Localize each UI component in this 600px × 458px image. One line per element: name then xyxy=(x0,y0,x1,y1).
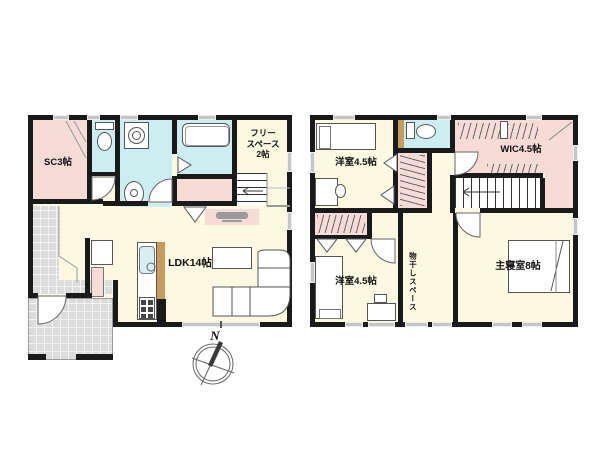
window-opening xyxy=(198,115,216,120)
wall-segment xyxy=(450,175,455,213)
wall-segment xyxy=(172,120,177,154)
room-label-drying: 物干しスペース xyxy=(408,242,417,322)
room-label-bedroom-a: 洋室4.5帖 xyxy=(326,157,386,169)
tv-icon xyxy=(216,212,248,219)
wall-segment xyxy=(66,293,92,298)
window-opening xyxy=(492,322,512,327)
wall-segment xyxy=(115,120,120,204)
porch-wall-stub xyxy=(76,354,113,360)
stairs-1f-icon xyxy=(237,173,267,206)
floor-plan-canvas: SC3帖 フリー スペース 2帖 LDK14帖 洋室4.5帖 WIC4.5帖 洋… xyxy=(0,0,600,458)
wall-segment xyxy=(33,199,103,204)
hanger-rack-icon xyxy=(400,155,425,206)
bathtub-icon xyxy=(182,123,230,147)
room-wic-ext xyxy=(545,173,573,208)
window-opening xyxy=(310,262,315,283)
washing-machine-icon xyxy=(124,122,149,149)
bathtub-inner xyxy=(185,126,229,146)
tv-board xyxy=(205,209,259,225)
entrance-tile-strip xyxy=(33,206,59,282)
wall-segment xyxy=(177,174,237,179)
toilet-tank-icon xyxy=(95,122,114,130)
wall-segment xyxy=(92,172,115,176)
window-opening xyxy=(522,322,542,327)
wall-segment xyxy=(540,178,545,208)
window-opening xyxy=(368,322,395,327)
pillow xyxy=(319,309,341,319)
wall-segment xyxy=(28,293,38,298)
hall-cabinet xyxy=(91,267,104,297)
label-line: スペース xyxy=(237,139,289,150)
toilet-tank-icon xyxy=(406,122,415,139)
window-opening xyxy=(437,115,451,120)
wall-segment xyxy=(157,299,166,322)
wic-support xyxy=(500,121,508,139)
porch-tiles xyxy=(28,298,113,360)
chair-icon xyxy=(335,184,346,198)
shoe-cabinet xyxy=(91,240,113,265)
toilet-counter xyxy=(398,120,404,148)
wall-segment xyxy=(87,120,92,201)
wall-segment xyxy=(450,120,455,152)
compass-north-label: N xyxy=(207,328,223,344)
room-label-bedroom-b: 洋室4.5帖 xyxy=(326,276,386,288)
room-changing xyxy=(177,179,232,201)
room-label-sc: SC3帖 xyxy=(30,157,86,169)
window-opening xyxy=(87,115,100,120)
wall-segment xyxy=(28,115,33,298)
room-label-free-space: フリー スペース 2帖 xyxy=(237,128,289,160)
wall-segment xyxy=(393,120,398,213)
wall-segment xyxy=(427,153,432,213)
window-opening xyxy=(573,218,578,235)
window-opening xyxy=(287,212,292,230)
hanger-rack-icon xyxy=(317,215,365,233)
toilet-icon xyxy=(97,132,112,151)
pillow xyxy=(319,126,331,149)
window-divider xyxy=(220,321,222,328)
chair-icon xyxy=(374,294,387,303)
wall-segment xyxy=(315,235,372,239)
window-opening xyxy=(432,322,452,327)
window-opening xyxy=(526,115,542,120)
compass-icon xyxy=(192,342,234,385)
window-opening xyxy=(333,115,355,120)
wall-segment xyxy=(315,208,432,213)
desk-icon xyxy=(367,303,396,321)
tv-stand xyxy=(222,220,242,222)
room-label-ldk: LDK14帖 xyxy=(160,257,220,270)
label-line: 2帖 xyxy=(237,149,289,160)
wall-segment xyxy=(172,201,237,206)
window-opening xyxy=(120,115,138,120)
porch-wall-stub xyxy=(28,354,46,360)
toilet-icon xyxy=(416,124,436,139)
label-line: フリー xyxy=(237,128,289,139)
room-label-wic: WIC4.5帖 xyxy=(490,144,552,156)
stairs-2f-icon xyxy=(455,178,541,208)
wall-segment xyxy=(85,238,90,293)
stove-icon xyxy=(139,297,155,319)
wall-segment xyxy=(398,213,403,322)
room-label-master: 主寝室8帖 xyxy=(487,261,549,274)
wall-segment xyxy=(480,208,578,213)
bed-icon xyxy=(316,123,376,150)
hanger-rack-icon xyxy=(458,123,538,139)
window-opening xyxy=(345,322,363,327)
window-opening xyxy=(573,145,578,161)
wall-segment xyxy=(103,201,148,206)
window-opening xyxy=(405,322,428,327)
kitchen-sink-icon xyxy=(139,246,155,274)
wall-segment xyxy=(113,280,118,325)
window-opening xyxy=(310,152,315,173)
wall-segment xyxy=(455,173,543,178)
wall-segment xyxy=(453,213,458,322)
window-opening xyxy=(53,115,69,120)
wall-segment xyxy=(310,115,315,327)
kitchen-counter xyxy=(157,242,165,299)
